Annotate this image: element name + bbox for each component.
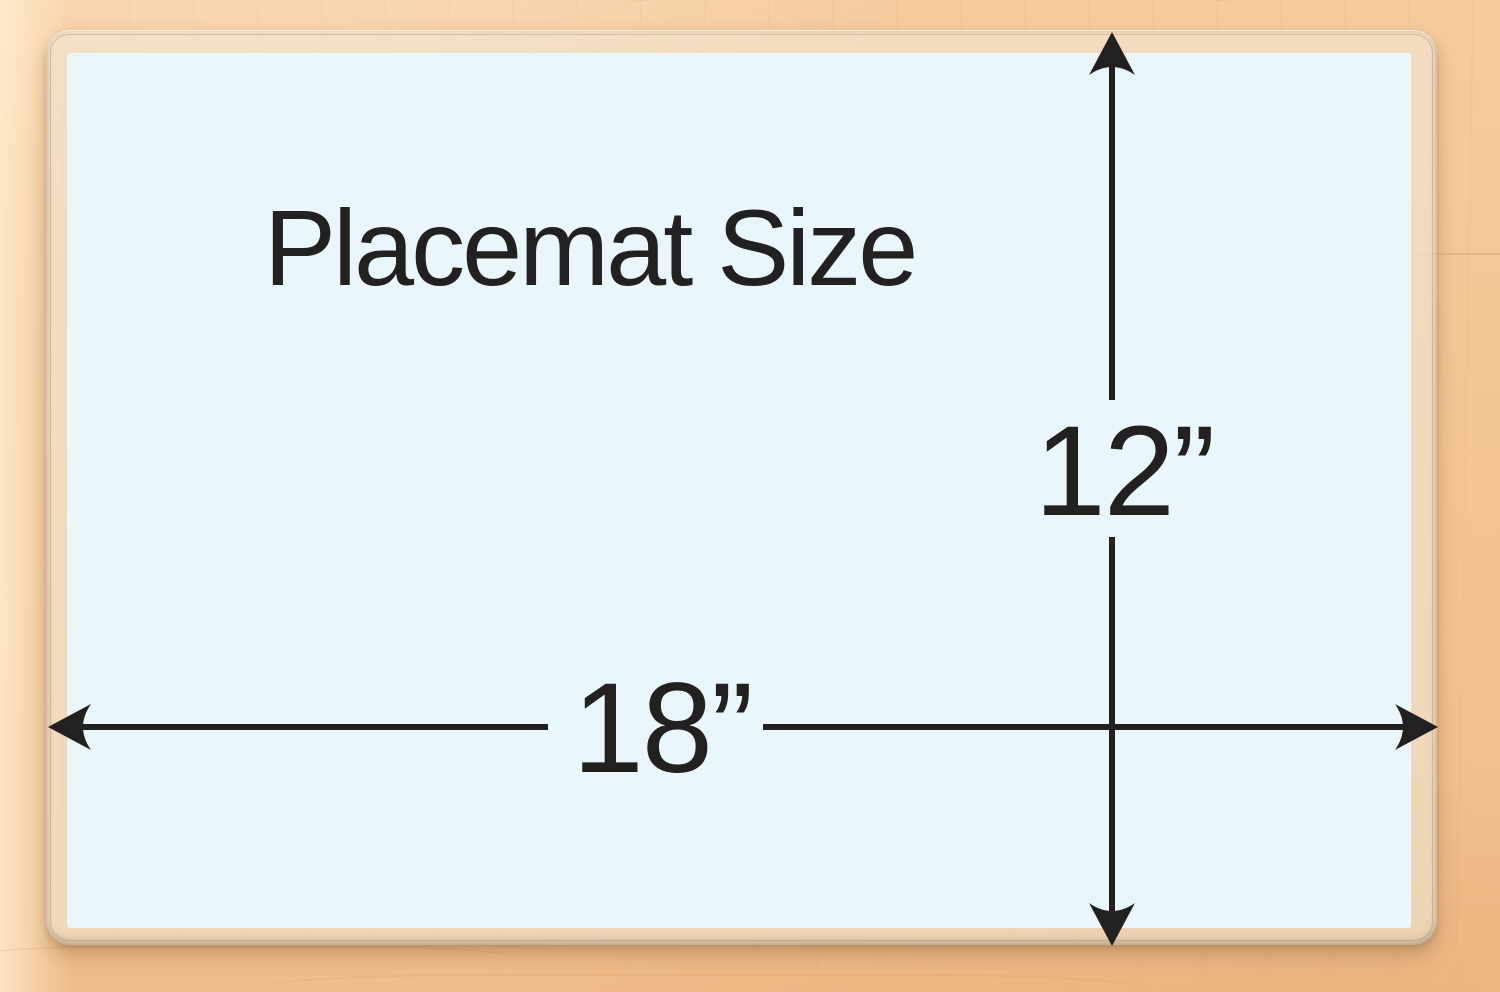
height-dimension-label: 12” [1035, 408, 1214, 536]
placemat-title: Placemat Size [264, 194, 915, 302]
wood-grain-line [620, 0, 1240, 18]
wood-grain-line [0, 946, 520, 974]
placemat-size-diagram: Placemat Size 12” 18” [0, 0, 1500, 992]
wood-grain-line [250, 974, 1150, 992]
width-dimension-label: 18” [573, 665, 752, 793]
